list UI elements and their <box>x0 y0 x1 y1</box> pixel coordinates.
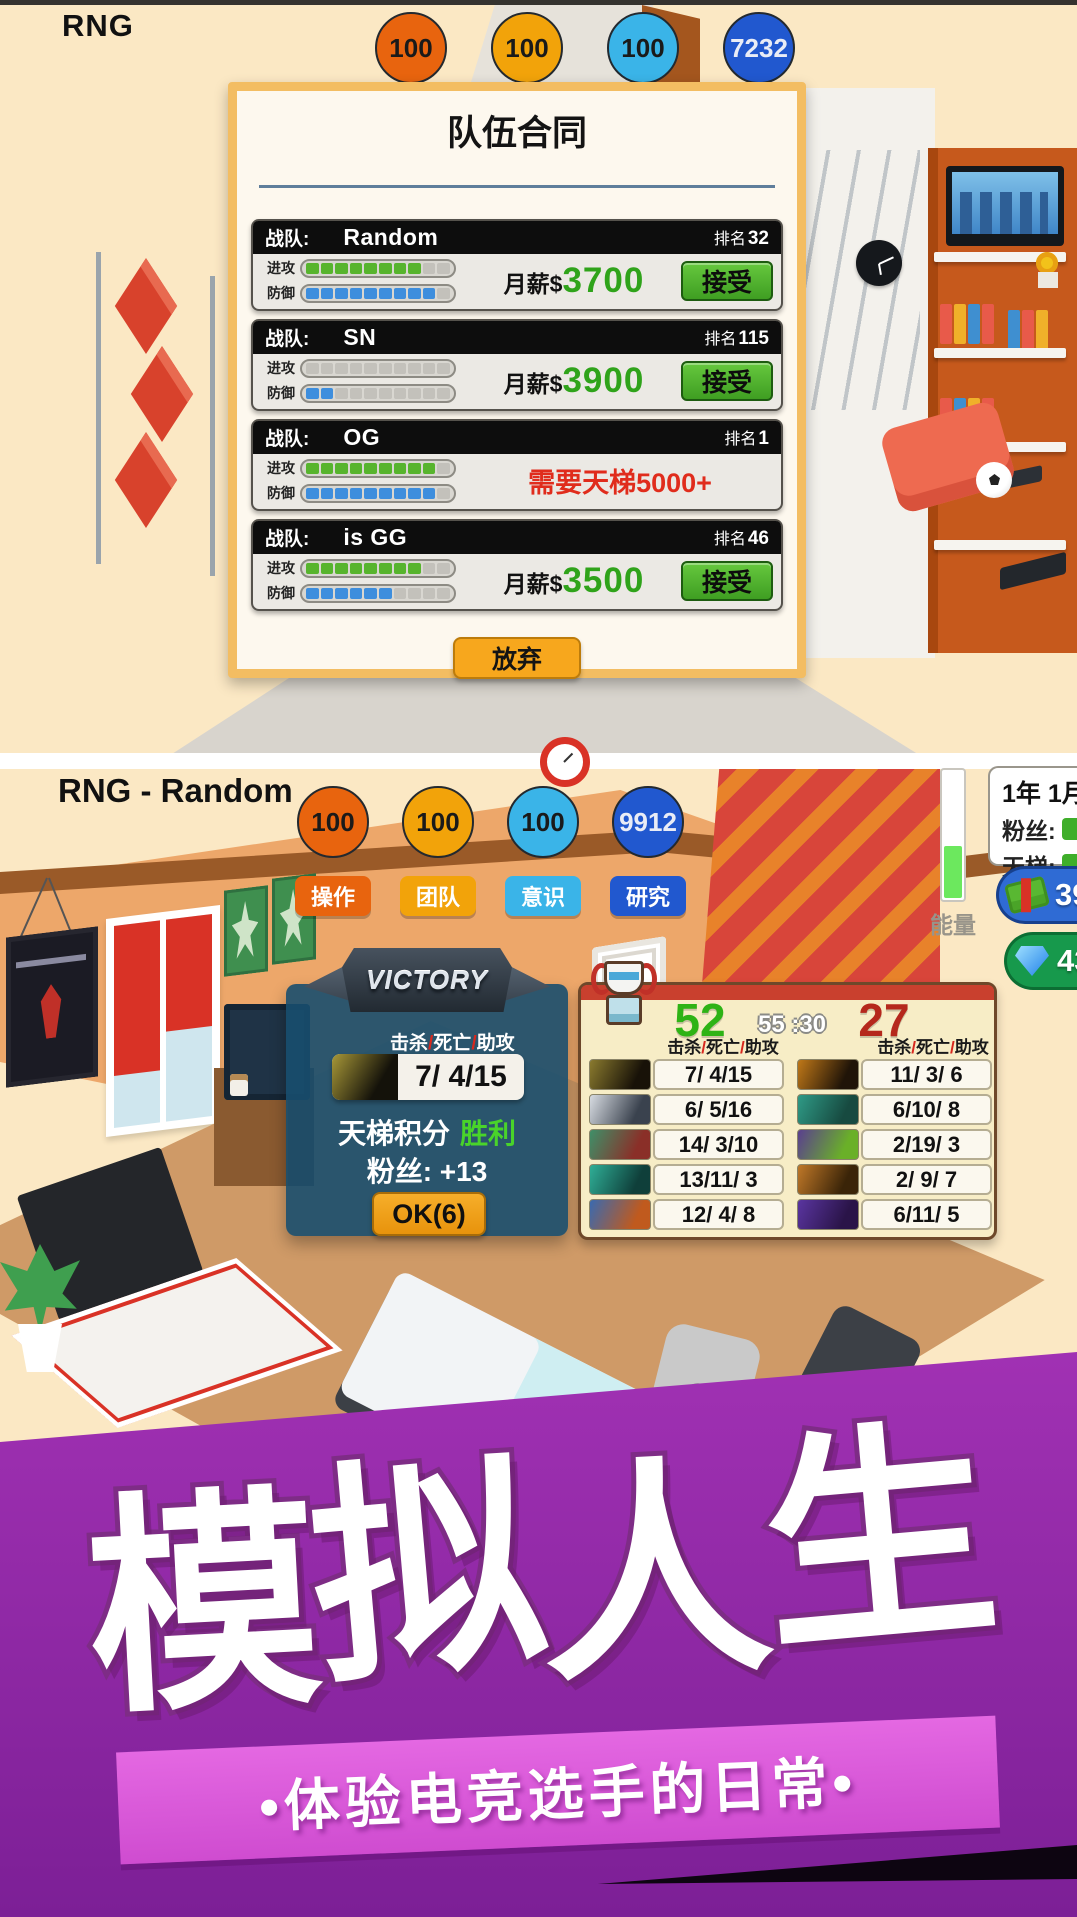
top-stat-badges: 100 100 100 7232 <box>375 12 795 84</box>
team-label: 战队: <box>265 424 309 451</box>
bar-segment <box>379 463 392 474</box>
stat-badge-value: 100 <box>505 33 548 64</box>
bar-segment <box>423 488 436 499</box>
fans-row: 粉丝: <box>1002 812 1077 846</box>
defense-bar-row: 防御 <box>261 583 467 603</box>
ladder-points-value: 胜利 <box>460 1118 516 1149</box>
stat-badge[interactable]: 100 <box>607 12 679 84</box>
soccer-ball <box>976 462 1012 498</box>
bar-segment <box>423 463 436 474</box>
team-card-header: 战队: SN 排名115 <box>253 321 781 354</box>
team-name: Random <box>343 224 438 251</box>
bar-segment <box>423 263 436 274</box>
stat-badge-circle[interactable]: 100 <box>607 12 679 84</box>
bar-segment <box>350 563 363 574</box>
red-box <box>115 432 177 528</box>
left-team-rows: 7/ 4/15 6/ 5/16 14/ 3/10 13/11/ 3 12/ 4/… <box>589 1059 784 1230</box>
sunflower <box>1036 252 1058 274</box>
kda-value: 14/ 3/10 <box>653 1129 784 1160</box>
attack-bar <box>300 359 456 378</box>
bar-segment <box>408 263 421 274</box>
victory-kda-header: 击杀/死亡/助攻 <box>390 1028 560 1055</box>
bar-segment <box>364 588 377 599</box>
match-scoreboard: 52 55 :30 27 击杀/死亡/助攻 击杀/死亡/助攻 7/ 4/15 6… <box>578 982 997 1240</box>
stat-badge-value: 100 <box>521 807 564 838</box>
bar-segment <box>306 288 319 299</box>
scoreboard-row: 6/ 5/16 <box>589 1094 784 1125</box>
bar-segment <box>408 363 421 374</box>
team-card-header: 战队: Random 排名32 <box>253 221 781 254</box>
bar-segment <box>408 488 421 499</box>
red-box <box>131 346 193 442</box>
stat-badge[interactable]: 100 意识 <box>507 786 579 916</box>
top-strip <box>0 0 1077 5</box>
trophy-icon <box>595 959 653 1033</box>
bar-segment <box>335 488 348 499</box>
salary-value: 3900 <box>562 361 644 401</box>
tv-skyline <box>960 192 1048 234</box>
energy-label: 能量 <box>916 906 990 940</box>
dialog-divider <box>259 185 775 188</box>
wall-clock <box>856 240 902 286</box>
attack-bar-row: 进攻 <box>261 358 467 378</box>
hero-portrait <box>589 1199 651 1230</box>
cash-icon <box>1004 876 1050 915</box>
gem-value: 43 <box>1057 943 1077 979</box>
bar-segment <box>335 588 348 599</box>
red-box <box>115 258 177 354</box>
team-card-header: 战队: OG 排名1 <box>253 421 781 454</box>
bar-segment <box>350 488 363 499</box>
stat-badge[interactable]: 100 <box>491 12 563 84</box>
bar-segment <box>306 263 319 274</box>
red-blind <box>114 920 160 1076</box>
scoreboard-row: 7/ 4/15 <box>589 1059 784 1090</box>
energy-fill <box>944 846 962 898</box>
bar-segment <box>408 288 421 299</box>
gem-pill[interactable]: 43 <box>1004 932 1077 990</box>
defense-label: 防御 <box>261 483 295 503</box>
bar-segment <box>437 563 450 574</box>
bar-segment <box>408 563 421 574</box>
shelf-board <box>934 348 1066 358</box>
ladder-points-line: 天梯积分胜利 <box>286 1112 568 1152</box>
defense-label: 防御 <box>261 283 295 303</box>
bar-segment <box>335 363 348 374</box>
hero-portrait <box>797 1199 859 1230</box>
bar-segment <box>350 363 363 374</box>
defense-bar <box>300 384 456 403</box>
bar-segment <box>437 363 450 374</box>
stat-badge-circle[interactable]: 100 <box>402 786 474 858</box>
bar-segment <box>364 463 377 474</box>
bar-segment <box>437 263 450 274</box>
shelf-board <box>934 540 1066 550</box>
hero-portrait <box>797 1059 859 1090</box>
salary-value: 3500 <box>562 561 644 601</box>
mid-stat-badges: 100 操作 100 团队 100 意识 9912 研究 <box>297 786 684 916</box>
victory-banner: VICTORY <box>342 948 512 1012</box>
coffee-cup <box>230 1074 248 1096</box>
books-row <box>1008 310 1048 350</box>
stat-badge-label[interactable]: 团队 <box>400 876 476 916</box>
esports-poster <box>6 926 98 1087</box>
bar-segment <box>350 463 363 474</box>
scoreboard-row: 13/11/ 3 <box>589 1164 784 1195</box>
hero-portrait <box>797 1094 859 1125</box>
bar-segment <box>394 588 407 599</box>
fans-gain-line: 粉丝: +13 <box>286 1150 568 1190</box>
victory-kda-unit: 7/ 4/15 <box>332 1054 524 1100</box>
victory-dialog: VICTORY 击杀/死亡/助攻 7/ 4/15 天梯积分胜利 粉丝: +13 … <box>286 984 568 1236</box>
bar-segment <box>321 488 334 499</box>
team-rank: 排名32 <box>714 225 769 250</box>
team-card-body: 进攻 防御 月薪$3700 接受 <box>253 254 781 307</box>
team-label: 战队: <box>265 524 309 551</box>
team-name: is GG <box>343 524 407 551</box>
bar-segment <box>306 488 319 499</box>
salary-label: 月薪$ <box>504 265 563 299</box>
stat-badge-circle[interactable]: 100 <box>297 786 369 858</box>
kda-header-left: 击杀/死亡/助攻 <box>633 1033 813 1058</box>
accept-button[interactable]: 接受 <box>681 261 773 301</box>
scoreboard-row: 6/10/ 8 <box>797 1094 992 1125</box>
bar-segment <box>335 263 348 274</box>
attack-label: 进攻 <box>261 558 295 578</box>
offer-detail: 月薪$3900 <box>467 361 681 401</box>
team-name: SN <box>343 324 376 351</box>
stat-badge-circle[interactable]: 7232 <box>723 12 795 84</box>
bar-segment <box>335 388 348 399</box>
bar-segment <box>437 463 450 474</box>
app-root: RNG 100 100 100 7232 队伍合同 战队: Random 排名3… <box>0 0 1077 1917</box>
defense-bar-row: 防御 <box>261 283 467 303</box>
bar-segment <box>394 563 407 574</box>
team-label: 战队: <box>265 224 309 251</box>
bar-segment <box>408 463 421 474</box>
attack-bar <box>300 259 456 278</box>
bar-segment <box>379 488 392 499</box>
fans-gain-label: 粉丝: <box>367 1156 432 1187</box>
bar-segment <box>321 263 334 274</box>
bar-segment <box>423 588 436 599</box>
hero-portrait <box>797 1164 859 1195</box>
bar-segment <box>379 388 392 399</box>
bar-segment <box>394 388 407 399</box>
bar-segment <box>379 288 392 299</box>
defense-bar-row: 防御 <box>261 383 467 403</box>
team-offer-card: 战队: Random 排名32 进攻 防御 月薪$3700 接受 <box>251 219 783 311</box>
bar-segment <box>321 363 334 374</box>
contract-dialog: 队伍合同 战队: Random 排名32 进攻 防御 月薪$3700 接受 <box>228 82 806 678</box>
kda-value: 13/11/ 3 <box>653 1164 784 1195</box>
ok-button[interactable]: OK(6) <box>372 1192 486 1236</box>
bar-segment <box>350 263 363 274</box>
hero-portrait <box>589 1059 651 1090</box>
books-row <box>940 304 994 344</box>
rack-frame <box>210 276 215 576</box>
attack-label: 进攻 <box>261 358 295 378</box>
scoreboard-row: 12/ 4/ 8 <box>589 1199 784 1230</box>
defense-bar <box>300 484 456 503</box>
requirement-text: 需要天梯5000+ <box>528 461 712 500</box>
victory-text: VICTORY <box>366 965 488 996</box>
fans-value-clipped <box>1062 818 1077 840</box>
team-rank: 排名1 <box>724 425 769 450</box>
attack-label: 进攻 <box>261 258 295 278</box>
stat-badge[interactable]: 7232 <box>723 12 795 84</box>
bar-segment <box>408 388 421 399</box>
stat-badge-value: 100 <box>389 33 432 64</box>
bar-segment <box>437 288 450 299</box>
stat-badge-label[interactable]: 操作 <box>295 876 371 916</box>
bar-segment <box>335 288 348 299</box>
team-rank: 排名115 <box>704 325 769 350</box>
defense-bar <box>300 284 456 303</box>
bar-segment <box>423 363 436 374</box>
red-alarm-clock <box>540 737 590 787</box>
stat-badge-value: 7232 <box>730 33 788 64</box>
team-card-body: 进攻 防御 月薪$3900 接受 <box>253 354 781 407</box>
stat-badge-value: 100 <box>416 807 459 838</box>
accept-button[interactable]: 接受 <box>681 561 773 601</box>
bar-segment <box>321 588 334 599</box>
defense-label: 防御 <box>261 583 295 603</box>
offer-detail: 月薪$3500 <box>467 561 681 601</box>
plant-painting <box>224 885 268 976</box>
bar-segment <box>379 588 392 599</box>
stat-badge[interactable]: 100 操作 <box>297 786 369 916</box>
bar-segment <box>423 563 436 574</box>
bar-segment <box>321 463 334 474</box>
attack-label: 进攻 <box>261 458 295 478</box>
game-date: 1年 1月 <box>1002 774 1077 810</box>
diamond-icon <box>1015 946 1049 976</box>
stat-bars: 进攻 防御 <box>261 258 467 303</box>
bar-segment <box>306 363 319 374</box>
calendar-panel: 1年 1月 粉丝: 天梯: <box>988 766 1077 866</box>
kda-value: 2/19/ 3 <box>861 1129 992 1160</box>
bar-segment <box>364 288 377 299</box>
kda-value: 2/ 9/ 7 <box>861 1164 992 1195</box>
bar-segment <box>350 588 363 599</box>
money-value: 39 <box>1055 877 1077 913</box>
hero-portrait <box>332 1054 398 1100</box>
accept-button[interactable]: 接受 <box>681 361 773 401</box>
stat-badge-circle[interactable]: 100 <box>507 786 579 858</box>
hero-portrait <box>797 1129 859 1160</box>
player-tag-mid: RNG - Random <box>58 772 293 810</box>
bar-segment <box>394 263 407 274</box>
bar-segment <box>350 288 363 299</box>
scoreboard-row: 11/ 3/ 6 <box>797 1059 992 1090</box>
fans-gain-value: +13 <box>440 1156 488 1187</box>
hero-portrait <box>589 1164 651 1195</box>
scoreboard-row: 6/11/ 5 <box>797 1199 992 1230</box>
bar-segment <box>321 388 334 399</box>
team-label: 战队: <box>265 324 309 351</box>
bar-segment <box>394 463 407 474</box>
attack-bar-row: 进攻 <box>261 458 467 478</box>
attack-bar <box>300 559 456 578</box>
bar-segment <box>437 388 450 399</box>
attack-bar-row: 进攻 <box>261 258 467 278</box>
bar-segment <box>379 263 392 274</box>
stat-badge-circle[interactable]: 9912 <box>612 786 684 858</box>
bar-segment <box>437 488 450 499</box>
salary-value: 3700 <box>562 261 644 301</box>
stat-badge-value: 100 <box>621 33 664 64</box>
stair-railing <box>800 150 920 410</box>
rack-frame <box>96 252 101 564</box>
dialog-title: 队伍合同 <box>237 105 797 156</box>
stat-badge[interactable]: 100 团队 <box>402 786 474 916</box>
kda-value: 11/ 3/ 6 <box>861 1059 992 1090</box>
stat-badge-circle[interactable]: 100 <box>375 12 447 84</box>
hero-portrait <box>589 1094 651 1125</box>
give-up-button[interactable]: 放弃 <box>453 637 581 679</box>
bar-segment <box>306 563 319 574</box>
scoreboard-row: 2/ 9/ 7 <box>797 1164 992 1195</box>
bar-segment <box>335 563 348 574</box>
bar-segment <box>364 488 377 499</box>
bar-segment <box>394 488 407 499</box>
defense-label: 防御 <box>261 383 295 403</box>
fans-label: 粉丝: <box>1002 812 1056 846</box>
team-card-header: 战队: is GG 排名46 <box>253 521 781 554</box>
victory-kda-value: 7/ 4/15 <box>398 1054 524 1100</box>
bar-segment <box>423 388 436 399</box>
stat-badge-value: 100 <box>311 807 354 838</box>
red-blind <box>166 914 212 1032</box>
window <box>106 905 220 1137</box>
victory-plate: VICTORY <box>342 948 512 1012</box>
stat-badge-value: 9912 <box>619 807 677 838</box>
bar-segment <box>364 388 377 399</box>
section-divider <box>0 753 1077 769</box>
bar-segment <box>394 288 407 299</box>
bar-segment <box>379 363 392 374</box>
kda-value: 6/11/ 5 <box>861 1199 992 1230</box>
stat-badge-label[interactable]: 意识 <box>505 876 581 916</box>
stat-badge-label[interactable]: 研究 <box>610 876 686 916</box>
player-tag-top: RNG <box>62 8 134 44</box>
bar-segment <box>394 363 407 374</box>
attack-bar-row: 进攻 <box>261 558 467 578</box>
bar-segment <box>321 288 334 299</box>
flower-pot <box>1038 272 1058 288</box>
defense-bar-row: 防御 <box>261 483 467 503</box>
team-offer-card: 战队: OG 排名1 进攻 防御 需要天梯5000+ <box>251 419 783 511</box>
salary-label: 月薪$ <box>504 565 563 599</box>
bar-segment <box>335 463 348 474</box>
bar-segment <box>306 463 319 474</box>
energy-bar <box>940 768 966 902</box>
scoreboard-row: 2/19/ 3 <box>797 1129 992 1160</box>
attack-bar <box>300 459 456 478</box>
stat-badge-circle[interactable]: 100 <box>491 12 563 84</box>
right-team-rows: 11/ 3/ 6 6/10/ 8 2/19/ 3 2/ 9/ 7 6/11/ 5 <box>797 1059 992 1230</box>
salary-label: 月薪$ <box>504 365 563 399</box>
stat-badge[interactable]: 100 <box>375 12 447 84</box>
kda-value: 6/10/ 8 <box>861 1094 992 1125</box>
stat-badge[interactable]: 9912 研究 <box>612 786 684 916</box>
bar-segment <box>408 588 421 599</box>
bar-segment <box>379 563 392 574</box>
bar-segment <box>321 563 334 574</box>
scoreboard-row: 14/ 3/10 <box>589 1129 784 1160</box>
offer-detail: 月薪$3700 <box>467 261 681 301</box>
bar-segment <box>423 288 436 299</box>
stat-bars: 进攻 防御 <box>261 558 467 603</box>
shelf-tv <box>946 166 1064 246</box>
team-rank: 排名46 <box>714 525 769 550</box>
bar-segment <box>437 588 450 599</box>
offer-detail: 需要天梯5000+ <box>467 461 773 500</box>
team-card-body: 进攻 防御 月薪$3500 接受 <box>253 554 781 607</box>
kda-header-right: 击杀/死亡/助攻 <box>843 1033 1023 1058</box>
kda-value: 12/ 4/ 8 <box>653 1199 784 1230</box>
team-offer-card: 战队: is GG 排名46 进攻 防御 月薪$3500 接受 <box>251 519 783 611</box>
stat-bars: 进攻 防御 <box>261 458 467 503</box>
kda-value: 6/ 5/16 <box>653 1094 784 1125</box>
ladder-points-label: 天梯积分 <box>338 1118 450 1149</box>
bar-segment <box>350 388 363 399</box>
stat-bars: 进攻 防御 <box>261 358 467 403</box>
money-pill[interactable]: 39 <box>996 866 1077 924</box>
bar-segment <box>306 388 319 399</box>
bar-segment <box>364 563 377 574</box>
defense-bar <box>300 584 456 603</box>
kda-value: 7/ 4/15 <box>653 1059 784 1090</box>
team-name: OG <box>343 424 380 451</box>
bar-segment <box>364 263 377 274</box>
team-card-body: 进攻 防御 需要天梯5000+ <box>253 454 781 507</box>
bar-segment <box>364 363 377 374</box>
team-offer-card: 战队: SN 排名115 进攻 防御 月薪$3900 接受 <box>251 319 783 411</box>
bar-segment <box>306 588 319 599</box>
hero-portrait <box>589 1129 651 1160</box>
